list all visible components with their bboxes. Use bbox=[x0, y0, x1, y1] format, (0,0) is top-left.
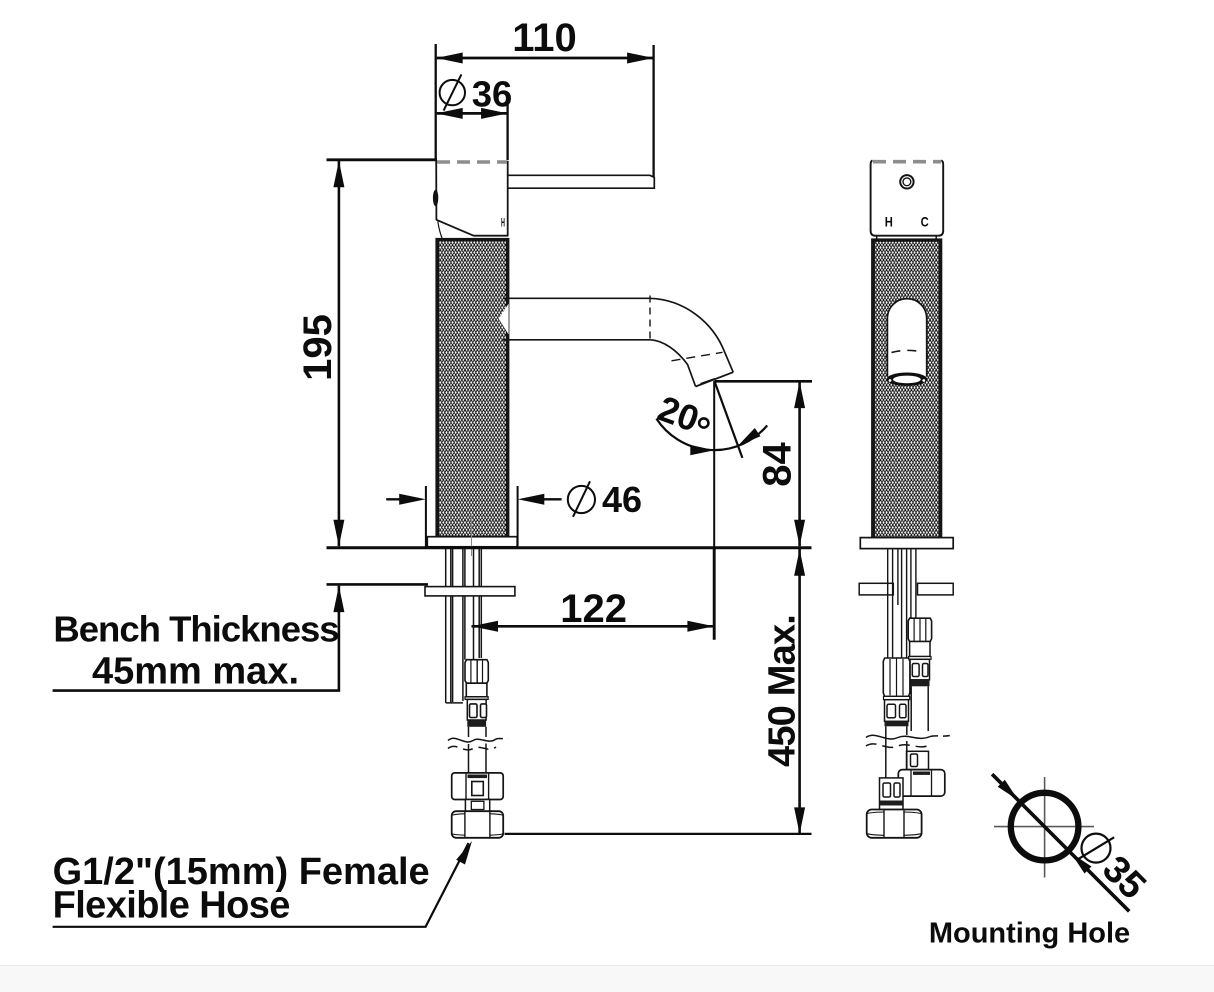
svg-text:46: 46 bbox=[602, 479, 642, 520]
svg-text:45mm max.: 45mm max. bbox=[92, 651, 299, 693]
svg-text:195: 195 bbox=[296, 314, 340, 381]
svg-text:H: H bbox=[885, 214, 893, 229]
svg-text:H: H bbox=[501, 216, 505, 229]
svg-text:36: 36 bbox=[472, 74, 513, 115]
svg-text:Bench Thickness: Bench Thickness bbox=[53, 608, 338, 649]
svg-text:122: 122 bbox=[560, 587, 627, 631]
svg-text:Flexible Hose: Flexible Hose bbox=[53, 885, 290, 927]
svg-text:Mounting Hole: Mounting Hole bbox=[929, 918, 1130, 950]
svg-text:C: C bbox=[921, 214, 929, 229]
svg-text:110: 110 bbox=[512, 16, 577, 60]
svg-text:450 Max.: 450 Max. bbox=[762, 615, 804, 767]
svg-text:84: 84 bbox=[756, 442, 800, 487]
